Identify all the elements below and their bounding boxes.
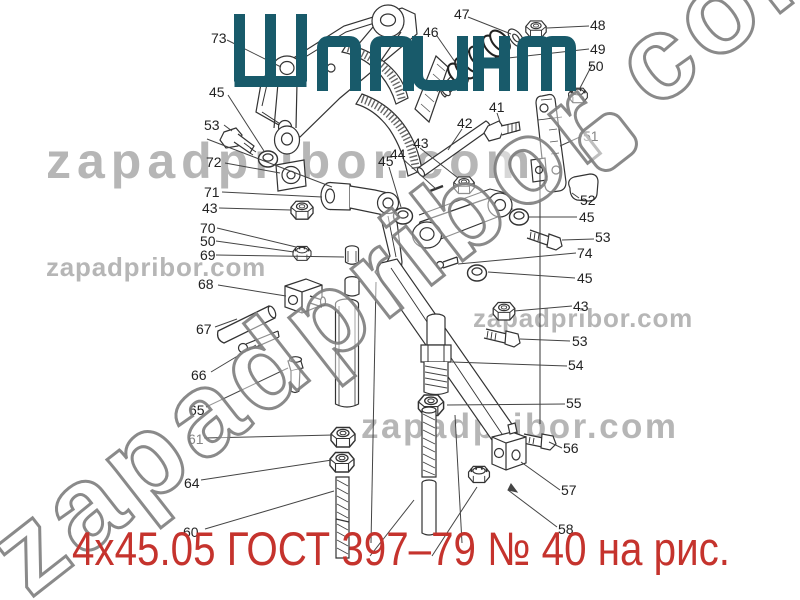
svg-text:43: 43: [202, 200, 218, 216]
svg-text:55: 55: [566, 395, 582, 411]
svg-text:53: 53: [204, 117, 220, 133]
svg-text:56: 56: [563, 440, 579, 456]
svg-text:72: 72: [206, 154, 222, 170]
svg-text:46: 46: [423, 24, 439, 40]
svg-text:45: 45: [577, 270, 593, 286]
svg-text:47: 47: [454, 6, 470, 22]
svg-text:74: 74: [577, 245, 593, 261]
svg-text:53: 53: [595, 229, 611, 245]
svg-text:45: 45: [579, 209, 595, 225]
svg-text:45: 45: [378, 153, 394, 169]
svg-text:68: 68: [198, 276, 214, 292]
svg-text:69: 69: [200, 247, 216, 263]
svg-text:zapadpribor.com: zapadpribor.com: [46, 252, 266, 282]
svg-text:57: 57: [561, 482, 577, 498]
svg-text:43: 43: [573, 298, 589, 314]
svg-text:45: 45: [209, 84, 225, 100]
svg-text:54: 54: [568, 357, 584, 373]
svg-text:43: 43: [413, 135, 429, 151]
svg-text:73: 73: [211, 30, 227, 46]
svg-text:53: 53: [572, 333, 588, 349]
svg-text:4х45.05 ГОСТ 397–79 № 40 на ри: 4х45.05 ГОСТ 397–79 № 40 на рис.: [72, 522, 730, 575]
svg-text:71: 71: [204, 184, 220, 200]
